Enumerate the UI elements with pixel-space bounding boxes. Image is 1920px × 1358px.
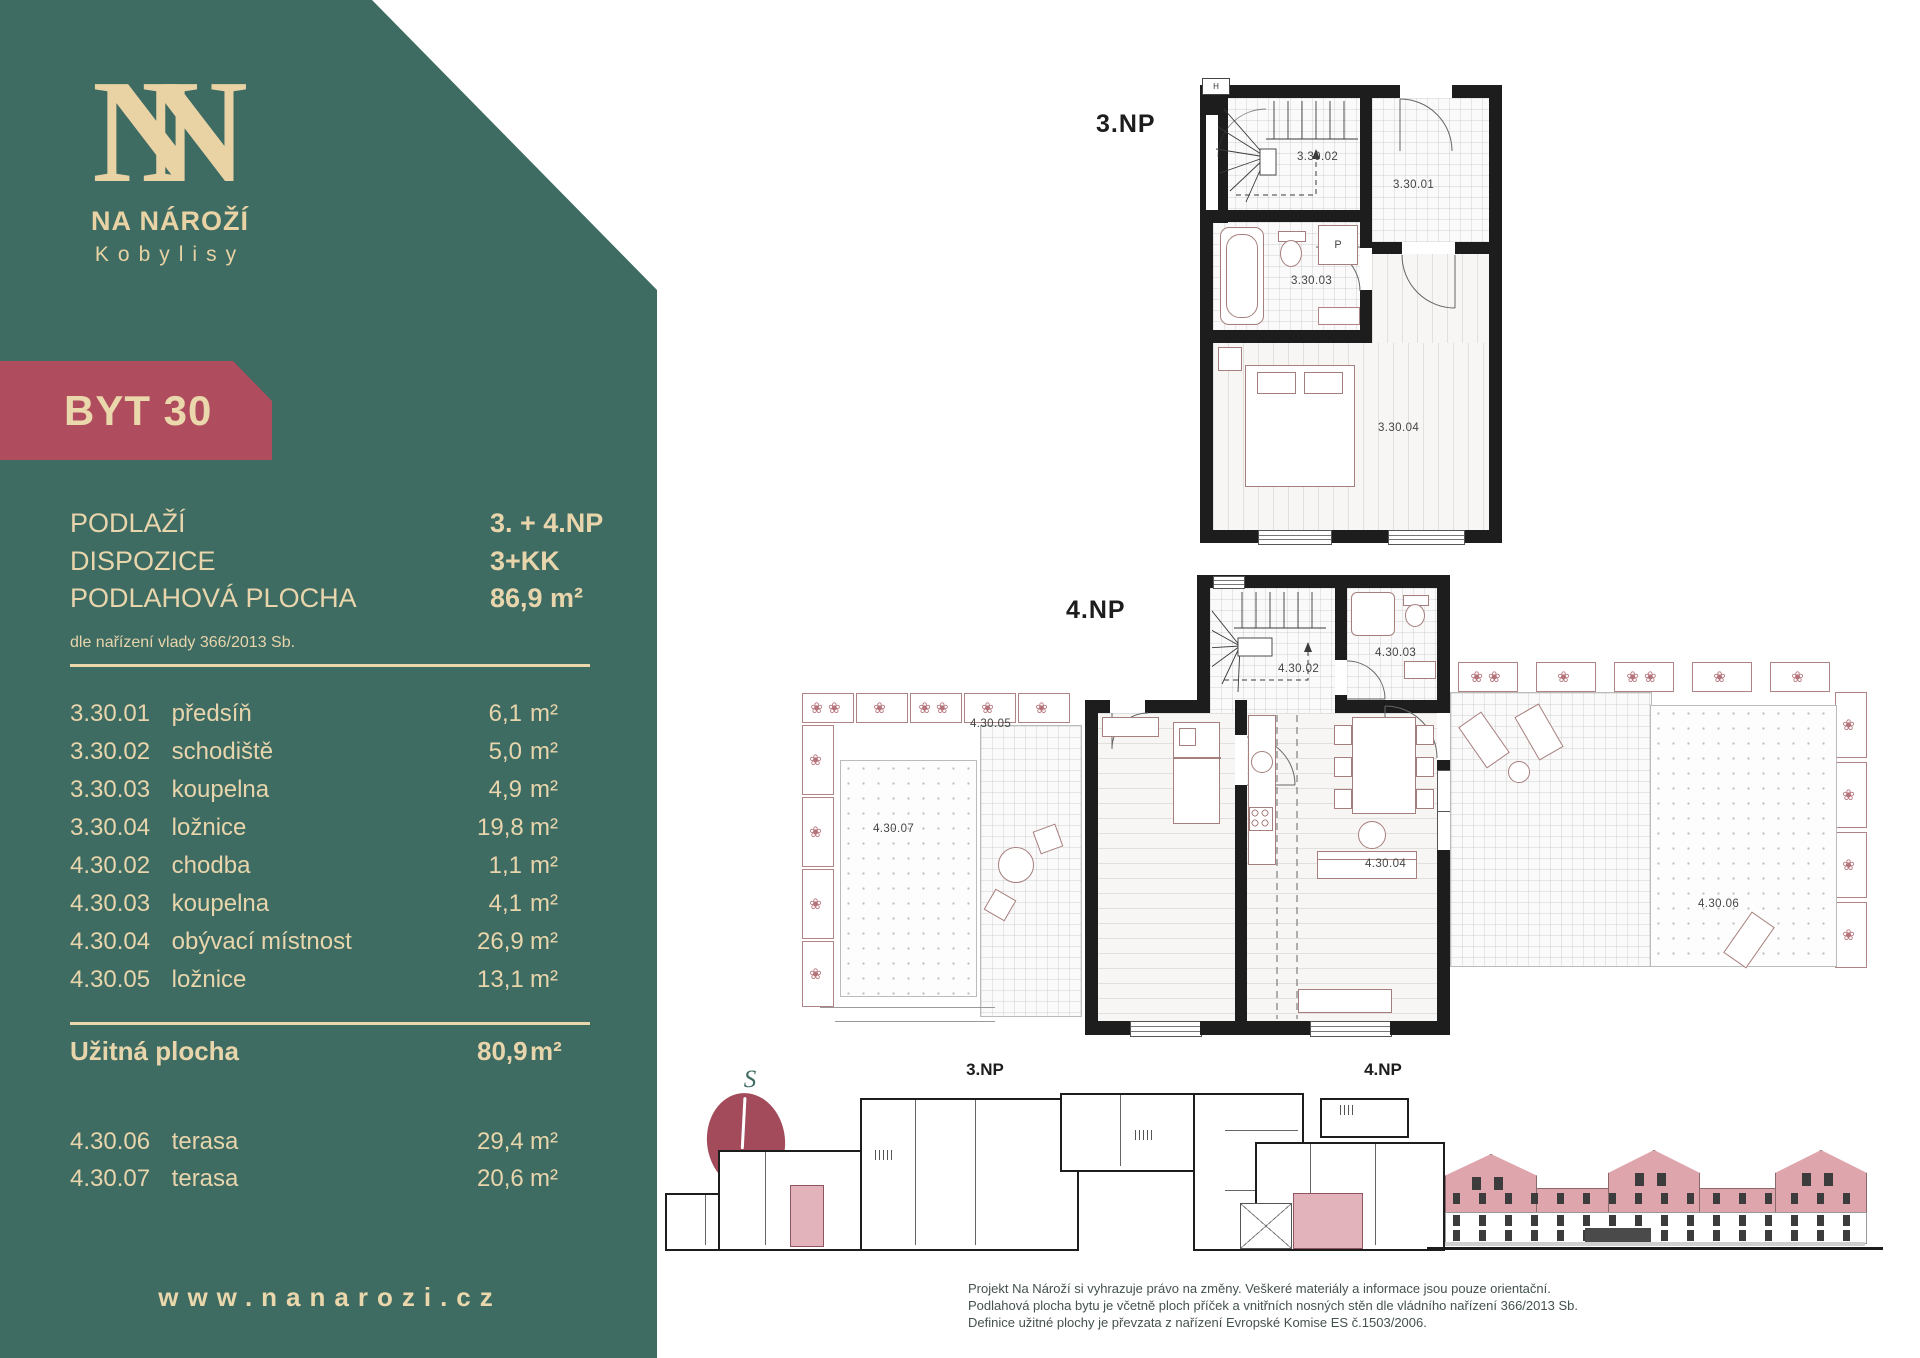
- room-label-bath: 4.30.03: [1375, 647, 1416, 659]
- side-table: [1508, 761, 1530, 783]
- summary-row-floor: PODLAŽÍ 3. + 4.NP: [70, 508, 615, 540]
- terrace-row: 4.30.07 terasa 20,6 m²: [70, 1165, 590, 1195]
- room-unit: m²: [530, 814, 558, 842]
- useful-area-row: Užitná plocha 80,9 m²: [70, 1036, 590, 1066]
- flower-icon: ❀: [810, 699, 828, 717]
- room-row: 4.30.02 chodba 1,1 m²: [70, 852, 590, 882]
- planter-flower-icon: ❀: [1835, 902, 1867, 968]
- room-area: 4,9: [477, 776, 522, 804]
- summary-label: PODLAHOVÁ PLOCHA: [70, 583, 357, 613]
- highlighted-unit: [790, 1185, 824, 1247]
- planter-flower-icon: ❀: [1536, 662, 1596, 692]
- interior-line: [975, 1100, 976, 1245]
- building-elevation: [1445, 1148, 1865, 1256]
- room-row: 3.30.03 koupelna 4,9 m²: [70, 776, 590, 806]
- room-unit: m²: [530, 890, 558, 918]
- room-unit: m²: [530, 966, 558, 994]
- room-area: 26,9: [477, 928, 522, 956]
- stair-hatch: [1340, 1105, 1356, 1115]
- room-area: 13,1: [477, 966, 522, 994]
- room-code: 3.30.01: [70, 700, 165, 728]
- flower-icon: ❀: [1791, 668, 1809, 686]
- bathtub: [1220, 227, 1264, 325]
- overview-plan-3np: [665, 1090, 1305, 1250]
- sink: [1404, 661, 1436, 679]
- room-code: 4.30.06: [70, 1128, 165, 1156]
- overview4-title: 4.NP: [1348, 1060, 1418, 1080]
- room-code: 4.30.03: [70, 890, 165, 918]
- chair: [1416, 789, 1434, 809]
- nightstand: [1218, 347, 1242, 371]
- summary-row-layout: DISPOZICE 3+KK: [70, 546, 615, 578]
- summary-label: PODLAŽÍ: [70, 508, 186, 538]
- divider: [70, 664, 590, 667]
- logo-n2: N: [141, 50, 248, 214]
- room-code: 4.30.02: [70, 852, 165, 880]
- ground-strip: [1445, 1242, 1865, 1246]
- chair: [1334, 725, 1352, 745]
- washer-box: P: [1318, 225, 1358, 265]
- h-marker-label: H: [1213, 82, 1219, 91]
- flower-icon: ❀: [809, 895, 827, 913]
- flower-icon: ❀: [1842, 716, 1860, 734]
- room-code: 3.30.02: [70, 738, 165, 766]
- floorplan-3np: P 3.30.02 3.30.01 3.30.03 3.30.04 H: [1200, 85, 1502, 543]
- terrace-row: 4.30.06 terasa 29,4 m²: [70, 1128, 590, 1158]
- room-row: 4.30.04 obývací místnost 26,9 m²: [70, 928, 590, 958]
- coffee-table: [1358, 821, 1386, 849]
- flower-icon: ❀: [1842, 786, 1860, 804]
- bath-shelf: [1318, 307, 1360, 325]
- gable-tower: [1608, 1150, 1700, 1214]
- gable-tower: [1445, 1154, 1537, 1214]
- room-area: 5,0: [477, 738, 522, 766]
- room-name: terasa: [172, 1165, 239, 1192]
- room-row: 4.30.03 koupelna 4,1 m²: [70, 890, 590, 920]
- stair-hatch: [1135, 1130, 1153, 1140]
- window-row: [1453, 1215, 1857, 1226]
- chair: [1334, 789, 1352, 809]
- flower-icon: ❀: [1557, 668, 1575, 686]
- interior-line: [1375, 1144, 1376, 1245]
- kitchen-counter: [1248, 715, 1276, 865]
- room-label-terrace-right: 4.30.06: [1698, 898, 1739, 910]
- toilet: [1403, 595, 1427, 627]
- flower-icon: ❀: [1644, 668, 1662, 686]
- overview-plan-4np: [1240, 1095, 1455, 1253]
- planter-flower-icon: ❀: [1835, 762, 1867, 828]
- flower-icon: ❀: [1470, 668, 1488, 686]
- room-area: 6,1: [477, 700, 522, 728]
- brand-logo: NN NA NÁROŽÍ Kobylisy: [55, 72, 285, 267]
- room-row: 3.30.02 schodiště 5,0 m²: [70, 738, 590, 768]
- planter-flower-icon: ❀: [1692, 662, 1752, 692]
- summary-value: 3+KK: [490, 546, 560, 577]
- flower-icon: ❀: [1842, 926, 1860, 944]
- room-name: koupelna: [172, 776, 269, 803]
- divider: [70, 1022, 590, 1025]
- room-name: ložnice: [172, 966, 247, 993]
- room-row: 4.30.05 ložnice 13,1 m²: [70, 966, 590, 996]
- washer-label: P: [1334, 239, 1341, 251]
- room-label-stairs: 3.30.02: [1297, 151, 1338, 163]
- planter-flower-icon: ❀: [1770, 662, 1830, 692]
- disclaimer-line1: Projekt Na Nároží si vyhrazuje právo na …: [968, 1280, 1668, 1297]
- gable-tower: [1775, 1150, 1867, 1214]
- room-area: 29,4: [477, 1128, 522, 1156]
- room-label-bath: 3.30.03: [1291, 275, 1332, 287]
- useful-area-label: Užitná plocha: [70, 1036, 239, 1066]
- planter-flower-icon: ❀: [1835, 692, 1867, 758]
- summary-value: 86,9 m²: [490, 583, 583, 614]
- room-row: 3.30.01 předsíň 6,1 m²: [70, 700, 590, 730]
- room-code: 3.30.03: [70, 776, 165, 804]
- room-area: 19,8: [477, 814, 522, 842]
- room-code: 4.30.07: [70, 1165, 165, 1193]
- room-label-bedroom: 4.30.05: [970, 718, 1011, 730]
- room-label-bedroom: 3.30.04: [1378, 422, 1419, 434]
- room-name: terasa: [172, 1128, 239, 1155]
- toilet: [1278, 231, 1304, 267]
- summary-value: 3. + 4.NP: [490, 508, 603, 539]
- brand-name: NA NÁROŽÍ: [55, 206, 285, 237]
- double-bed: [1245, 365, 1355, 487]
- window-row: [1453, 1230, 1857, 1241]
- building-wing: [1320, 1098, 1409, 1138]
- overview3-title: 3.NP: [950, 1060, 1020, 1080]
- room-code: 4.30.04: [70, 928, 165, 956]
- room-name: ložnice: [172, 814, 247, 841]
- room-name: předsíň: [172, 700, 252, 727]
- website-link[interactable]: www.nanarozi.cz: [70, 1282, 590, 1313]
- highlighted-unit: [1293, 1193, 1363, 1249]
- flower-icon: ❀: [1488, 668, 1506, 686]
- room-name: koupelna: [172, 890, 269, 917]
- brochure-page: NN NA NÁROŽÍ Kobylisy BYT 30 PODLAŽÍ 3. …: [0, 0, 1920, 1358]
- flower-icon: ❀: [1842, 856, 1860, 874]
- terrace-diagonal-mark: [1240, 1203, 1292, 1249]
- flower-icon: ❀: [809, 751, 827, 769]
- summary-note: dle nařízení vlady 366/2013 Sb.: [70, 634, 295, 652]
- disclaimer-line2: Podlahová plocha bytu je včetně ploch př…: [968, 1297, 1668, 1314]
- room-unit: m²: [530, 700, 558, 728]
- ground-line: [1427, 1247, 1883, 1250]
- stove: [1249, 807, 1273, 831]
- room-area: 1,1: [477, 852, 522, 880]
- logo-monogram-icon: NN: [55, 72, 285, 192]
- room-unit: m²: [530, 738, 558, 766]
- useful-area-value: 80,9: [477, 1036, 522, 1067]
- interior-line: [1120, 1095, 1121, 1166]
- planter-flower-icon: ❀: [1835, 832, 1867, 898]
- room-code: 3.30.04: [70, 814, 165, 842]
- window-row: [1453, 1193, 1857, 1204]
- entrance-dark: [1585, 1228, 1651, 1243]
- flower-icon: ❀: [809, 823, 827, 841]
- shower: [1351, 592, 1395, 636]
- room-area: 4,1: [477, 890, 522, 918]
- flower-icon: ❀: [809, 965, 827, 983]
- room-area: 20,6: [477, 1165, 522, 1193]
- planter-flower-icon: ❀❀: [1614, 662, 1674, 692]
- chair: [1416, 725, 1434, 745]
- wardrobe: [1102, 717, 1159, 737]
- bed: [1173, 722, 1220, 824]
- room-unit: m²: [530, 1165, 558, 1193]
- room-name: obývací místnost: [172, 928, 352, 955]
- planter-flower-icon: ❀❀: [1458, 662, 1518, 692]
- useful-area-unit: m²: [530, 1036, 562, 1067]
- summary-row-area: PODLAHOVÁ PLOCHA 86,9 m²: [70, 583, 615, 615]
- plan3-title: 3.NP: [1096, 110, 1156, 139]
- interior-line: [765, 1152, 766, 1245]
- room-unit: m²: [530, 776, 558, 804]
- room-label-hall: 3.30.01: [1393, 179, 1434, 191]
- kitchen-sink: [1251, 751, 1273, 773]
- flower-icon: ❀: [1626, 668, 1644, 686]
- h-marker: H: [1202, 78, 1230, 95]
- room-label-living: 4.30.04: [1365, 858, 1406, 870]
- brand-city: Kobylisy: [55, 243, 285, 267]
- summary-label: DISPOZICE: [70, 546, 216, 576]
- unit-badge: BYT 30: [64, 361, 212, 460]
- room-code: 4.30.05: [70, 966, 165, 994]
- building-wing: [860, 1098, 1079, 1251]
- room-name: chodba: [172, 852, 251, 879]
- room-unit: m²: [530, 852, 558, 880]
- dining-table: [1352, 717, 1416, 814]
- stair-hatch: [875, 1150, 893, 1160]
- room-unit: m²: [530, 928, 558, 956]
- floorplan-4np: ❀❀ ❀ ❀❀ ❀ ❀ ❀ ❀ ❀ ❀ 4.30.07: [830, 575, 1875, 1035]
- room-row: 3.30.04 ložnice 19,8 m²: [70, 814, 590, 844]
- interior-line: [705, 1195, 706, 1245]
- room-name: schodiště: [172, 738, 273, 765]
- disclaimer-line3: Definice užitné plochy je převzata z nař…: [968, 1314, 1668, 1331]
- disclaimer: Projekt Na Nároží si vyhrazuje právo na …: [968, 1280, 1668, 1331]
- chair: [1334, 757, 1352, 777]
- chair: [1416, 757, 1434, 777]
- room-label-corridor: 4.30.02: [1278, 663, 1319, 675]
- room-unit: m²: [530, 1128, 558, 1156]
- interior-line: [915, 1100, 916, 1245]
- flower-icon: ❀: [1713, 668, 1731, 686]
- sideboard: [1298, 989, 1392, 1013]
